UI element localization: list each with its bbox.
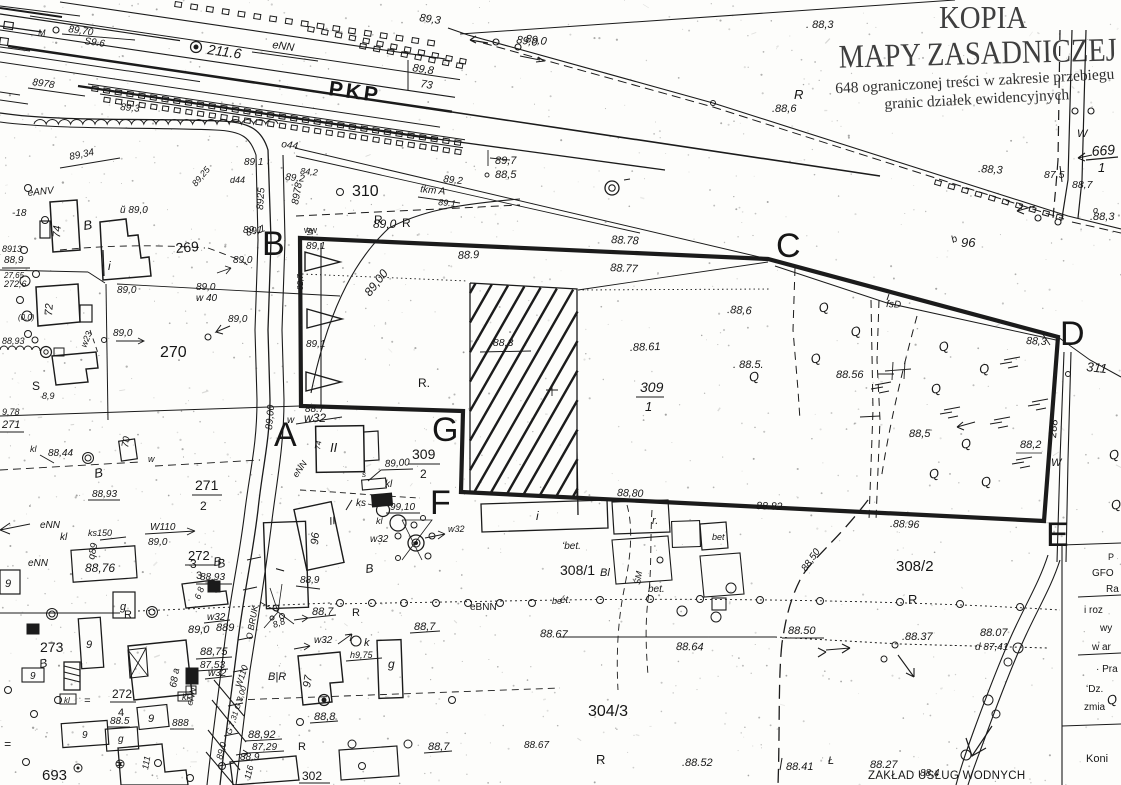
svg-text:288: 288 [1047,418,1061,439]
svg-text:88.77: 88.77 [610,262,639,275]
svg-text:8925: 8925 [255,187,268,210]
svg-text:74: 74 [51,225,64,238]
svg-text:.88,3: .88,3 [490,337,514,349]
svg-text:270: 270 [160,344,187,361]
svg-text:.88.52: .88.52 [682,757,713,769]
svg-text:.88.37: .88.37 [902,631,933,643]
svg-text:88.9: 88.9 [458,249,480,262]
svg-text:w ar: w ar [1091,642,1112,653]
svg-text:W: W [1051,457,1063,469]
svg-text:271: 271 [1,419,20,431]
svg-text:271: 271 [195,477,219,493]
svg-text:d44: d44 [230,175,245,185]
svg-text:89.1: 89.1 [438,197,456,209]
svg-text:R: R [124,609,132,621]
svg-text:2: 2 [200,499,207,513]
svg-text:96: 96 [961,235,976,250]
svg-text:88.56: 88.56 [836,369,864,381]
svg-text:88,9: 88,9 [4,255,24,266]
svg-text:kl: kl [60,532,68,543]
svg-text:96: 96 [309,531,322,545]
svg-text:88.82: 88.82 [756,500,783,513]
svg-text:89,1: 89,1 [306,241,325,252]
svg-text:88.64: 88.64 [676,641,704,653]
svg-text:· Pra: · Pra [1096,664,1118,675]
svg-text:272: 272 [112,687,132,701]
svg-text:89,00: 89,00 [264,404,277,430]
svg-text:88.78: 88.78 [611,234,640,247]
svg-text:ʻDz.: ʻDz. [1086,683,1103,695]
svg-text:w32: w32 [448,524,465,534]
svg-text:W110: W110 [150,522,176,533]
svg-text:II: II [330,440,338,455]
svg-text:kl: kl [64,696,70,705]
svg-text:88.07: 88.07 [980,627,1008,639]
svg-text:9: 9 [148,713,154,725]
svg-text:-18: -18 [12,208,27,219]
svg-text:89,3: 89,3 [120,102,141,115]
svg-text:84,2: 84,2 [300,166,318,177]
svg-text:R: R [374,213,383,227]
svg-text:88,2: 88,2 [1020,439,1041,451]
svg-text:eBNN: eBNN [470,602,497,613]
svg-text:Q: Q [1110,496,1121,513]
svg-text:ʻbet.: ʻbet. [562,540,581,552]
svg-text:9: 9 [86,639,92,651]
svg-text:kl: kl [376,516,384,526]
svg-text:88,7: 88,7 [1072,179,1094,191]
svg-text:8913: 8913 [2,244,22,254]
svg-text:R: R [908,592,917,607]
svg-text:ks: ks [356,498,366,509]
svg-text:d 87,41: d 87,41 [975,642,1008,653]
svg-text:88,93: 88,93 [2,336,25,346]
svg-text:309: 309 [412,446,436,462]
svg-text:i: i [536,509,539,523]
svg-text:zmia: zmia [1084,702,1106,713]
svg-text:2: 2 [420,467,427,481]
svg-text:w: w [287,415,295,426]
svg-text:R: R [794,87,803,102]
svg-text:88,80: 88,80 [617,487,644,500]
svg-text:88.41: 88.41 [786,761,814,773]
svg-text:.88.96: .88.96 [890,518,920,531]
svg-text:88,44: 88,44 [48,448,73,459]
svg-text:310: 310 [352,183,379,200]
svg-text:ks150: ks150 [88,528,112,538]
svg-text:89,0: 89,0 [233,255,253,266]
svg-text:311: 311 [1086,359,1108,376]
svg-text:89,00: 89,00 [384,457,410,470]
svg-text:=: = [84,695,91,707]
svg-text:88.50: 88.50 [788,625,816,637]
svg-text:88.5: 88.5 [110,716,130,727]
svg-text:27,65: 27,65 [3,271,25,280]
svg-text:888: 888 [172,718,189,729]
svg-text:bet: bet [712,532,725,542]
svg-text:Ł: Ł [828,755,834,767]
svg-text:R.: R. [418,376,430,390]
svg-text:C: C [776,227,801,265]
svg-text:72: 72 [43,303,56,316]
svg-text:S: S [32,379,40,393]
svg-text:669: 669 [1091,141,1116,159]
svg-text:w32: w32 [314,635,333,646]
svg-text:i: i [108,259,111,273]
svg-text:89,1: 89,1 [244,157,263,168]
svg-text:F: F [430,484,451,522]
svg-text:3: 3 [196,570,202,582]
svg-text:k: k [364,637,370,649]
svg-text:1: 1 [645,399,652,414]
svg-text:h9,75: h9,75 [350,650,374,660]
svg-text:89,1: 89,1 [243,225,262,236]
svg-text:s: s [362,470,366,479]
svg-text:.88,6: .88,6 [727,304,753,317]
svg-text:i roz: i roz [1084,605,1103,616]
svg-text:88,75: 88,75 [200,646,228,658]
svg-text:82,7: 82,7 [296,274,305,290]
svg-text:kl: kl [30,444,38,454]
svg-text:89,0: 89,0 [117,285,137,296]
svg-text:g: g [118,734,124,745]
svg-text:r.: r. [652,515,658,527]
svg-text:693: 693 [42,767,67,784]
svg-text:.88.61: .88.61 [630,341,661,354]
svg-text:Koni: Koni [1086,753,1108,765]
svg-text:309: 309 [640,379,664,395]
svg-text:=: = [4,737,11,751]
svg-text:GFO: GFO [1092,568,1114,579]
svg-text:P: P [1108,552,1114,562]
svg-text:1W: 1W [306,227,315,240]
svg-text:89,7: 89,7 [495,155,517,167]
svg-text:308/1: 308/1 [560,562,595,578]
svg-text:9: 9 [82,730,88,741]
svg-text:9: 9 [30,671,36,682]
svg-text:89,0: 89,0 [148,537,168,548]
svg-text:3: 3 [190,557,197,571]
svg-text:B|R: B|R [268,671,286,683]
svg-text:w 40: w 40 [196,293,218,304]
svg-text:88,5: 88,5 [909,428,931,440]
svg-text:89,0: 89,0 [113,328,133,339]
svg-text:eNN: eNN [28,558,49,569]
svg-text:. 88,3: . 88,3 [806,19,834,31]
svg-text:o: o [1093,205,1098,215]
svg-text:W: W [1077,128,1089,140]
svg-text:bet.: bet. [648,584,665,595]
svg-text:8,9: 8,9 [42,391,55,401]
svg-text:Ra: Ra [1106,584,1119,595]
svg-text:89,0: 89,0 [228,314,248,325]
svg-text:w: w [148,454,155,464]
svg-text:g: g [388,657,395,671]
svg-text:272,6: 272,6 [3,279,27,289]
svg-text:99,10: 99,10 [390,502,415,513]
svg-text:88.67: 88.67 [524,740,549,751]
svg-text:R: R [352,607,360,619]
svg-text:889: 889 [216,622,234,634]
svg-text:KOPIA: KOPIA [939,0,1027,35]
svg-text:R: R [402,216,411,230]
svg-text:304/3: 304/3 [588,703,628,720]
svg-text:.88,3: .88,3 [978,163,1004,177]
svg-text:R: R [596,752,605,767]
svg-text:89,0: 89,0 [196,282,216,293]
svg-text:1: 1 [1098,160,1105,175]
svg-text:M: M [38,28,46,38]
svg-text:88,9: 88,9 [300,575,320,586]
svg-text:eNN: eNN [40,520,61,531]
svg-text:ZAKŁAD USŁUG WODNYCH: ZAKŁAD USŁUG WODNYCH [868,770,1025,782]
svg-text:88.7: 88.7 [305,404,325,415]
svg-text:ŭ 89,0: ŭ 89,0 [120,205,148,216]
svg-text:R: R [298,741,306,753]
svg-text:9: 9 [5,578,11,590]
svg-text:Bl: Bl [600,567,610,579]
svg-text:308/2: 308/2 [896,558,934,575]
svg-text:88.67: 88.67 [540,628,569,641]
svg-text:=: = [116,757,123,771]
svg-text:89,0: 89,0 [188,624,210,636]
svg-text:88,93: 88,93 [92,489,117,500]
svg-text:.88,6: .88,6 [772,103,797,115]
svg-text:wy: wy [1099,623,1112,634]
svg-text:88,76: 88,76 [85,561,115,575]
